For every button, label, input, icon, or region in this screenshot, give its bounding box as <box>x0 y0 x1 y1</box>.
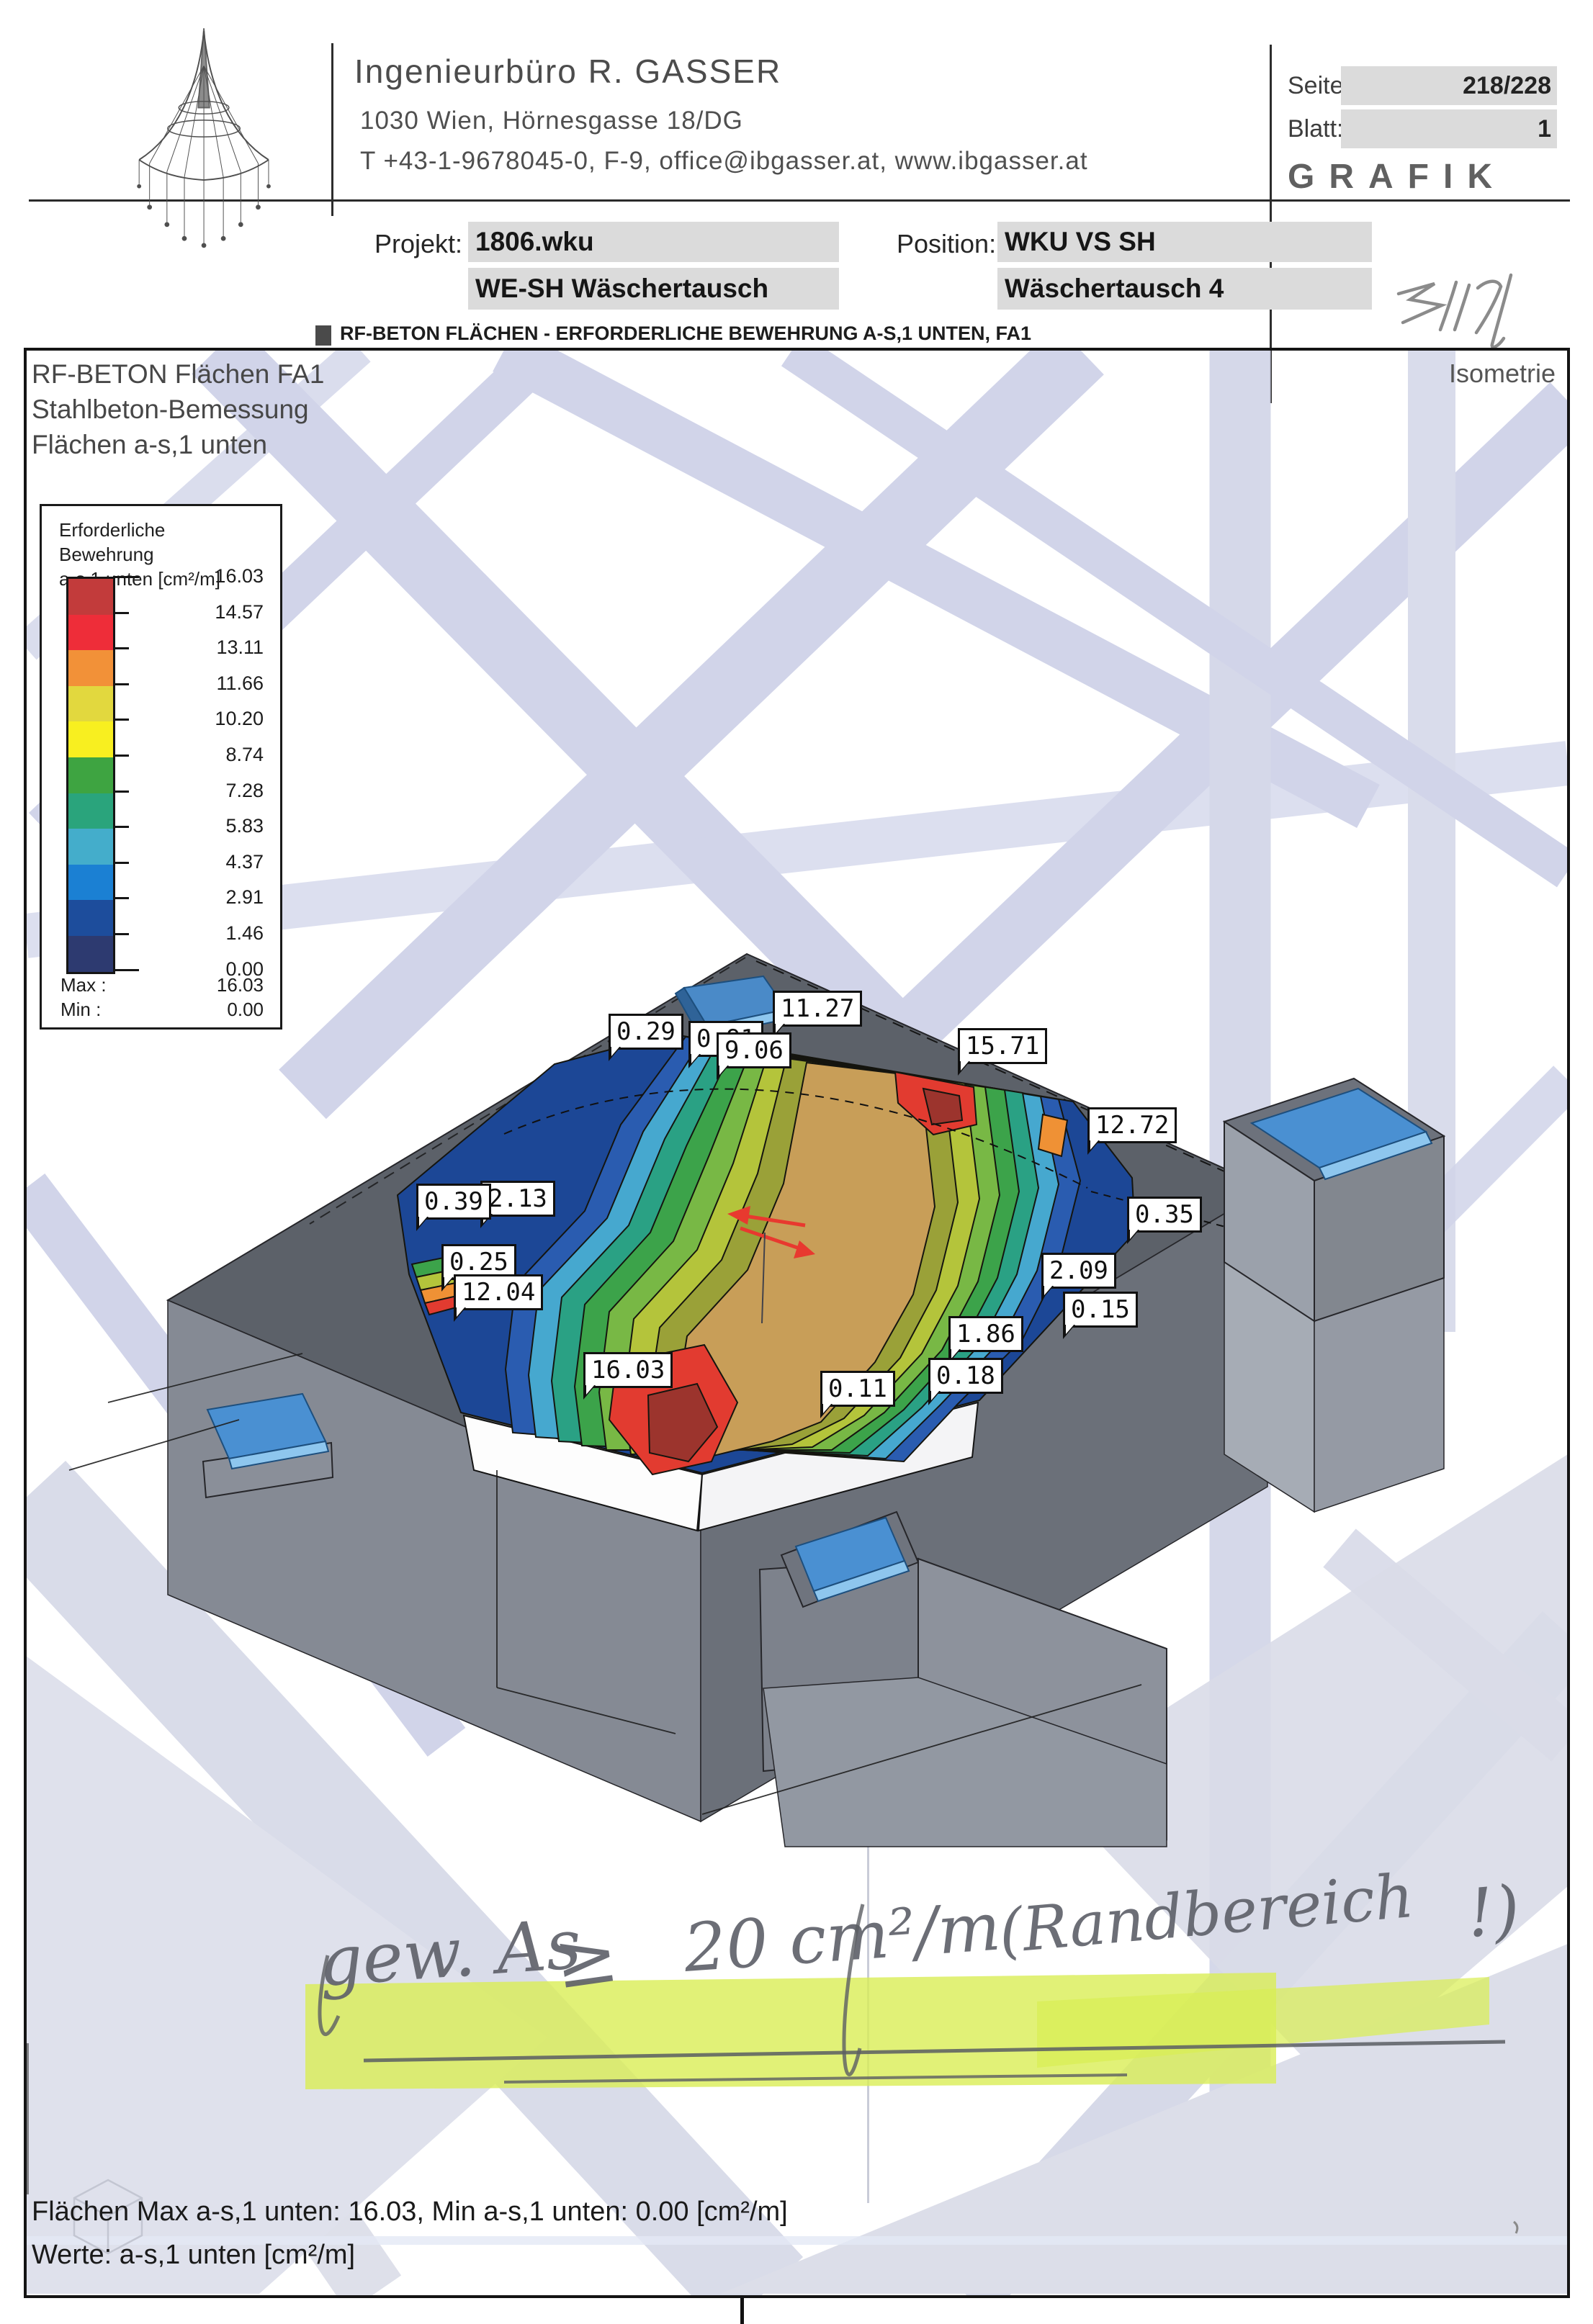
legend-segment <box>68 936 113 972</box>
value-label: 16.03 <box>583 1352 673 1388</box>
bottom-tick-mark <box>740 2298 744 2324</box>
legend-tick-mark <box>113 647 129 649</box>
legend-tick-value: 14.57 <box>150 601 264 623</box>
legend-segment <box>68 579 113 615</box>
view-label: Isometrie <box>1449 359 1556 389</box>
company-logo-icon <box>101 20 310 258</box>
legend-min-label: Min : <box>60 999 101 1021</box>
legend-tick-mark <box>113 969 139 971</box>
legend-tick-value: 7.28 <box>150 780 264 802</box>
legend-tick-value: 16.03 <box>150 565 264 587</box>
legend-tick-mark <box>113 683 129 685</box>
scanned-report-page: { "header": { "company": { "name": "Inge… <box>0 0 1593 2324</box>
legend-tick-value: 2.91 <box>150 886 264 909</box>
figure-subtitle-line3: Flächen a-s,1 unten <box>32 427 324 462</box>
value-label: 12.72 <box>1087 1107 1177 1143</box>
legend-tick-value: 13.11 <box>150 636 264 659</box>
figure-subtitle: RF-BETON Flächen FA1 Stahlbeton-Bemessun… <box>32 356 324 462</box>
value-label: 0.35 <box>1127 1197 1202 1233</box>
legend-segment <box>68 721 113 757</box>
legend-tick-value: 10.20 <box>150 708 264 730</box>
value-label: 0.18 <box>928 1358 1003 1394</box>
legend-tick-mark <box>113 576 139 578</box>
value-label: 2.09 <box>1041 1253 1116 1289</box>
legend-tick-mark <box>113 933 129 935</box>
legend-segment <box>68 686 113 722</box>
value-label: 11.27 <box>773 991 862 1027</box>
value-label: 1.86 <box>948 1316 1023 1352</box>
legend-tick-mark <box>113 862 129 864</box>
legend-title-line1: Erforderliche <box>59 518 220 542</box>
value-label: 12.04 <box>454 1274 543 1310</box>
legend-tick-mark <box>113 755 129 757</box>
legend-tick-value: 4.37 <box>150 851 264 873</box>
handwritten-page-mark <box>1399 275 1511 347</box>
legend-segment <box>68 900 113 936</box>
value-label: 15.71 <box>958 1028 1047 1064</box>
legend-tick-mark <box>113 719 129 721</box>
value-label: 2.13 <box>480 1181 555 1217</box>
figure-footer-line2: Werte: a-s,1 unten [cm²/m] <box>32 2233 788 2276</box>
legend-segment <box>68 757 113 793</box>
figure-subtitle-line2: Stahlbeton-Bemessung <box>32 392 324 427</box>
legend-segment <box>68 615 113 651</box>
legend-tick-value: 11.66 <box>150 672 264 695</box>
legend-tick-mark <box>113 612 129 614</box>
legend-segment <box>68 829 113 865</box>
value-label: 0.39 <box>416 1184 491 1220</box>
legend-tick-value: 8.74 <box>150 744 264 766</box>
legend-min-value: 0.00 <box>150 999 264 1021</box>
legend-box: Erforderliche Bewehrung a-s,1 unten [cm²… <box>40 504 282 1030</box>
legend-max-value: 16.03 <box>150 974 264 996</box>
legend-title-line2: Bewehrung <box>59 542 220 567</box>
legend-max-label: Max : <box>60 974 107 996</box>
legend-segment <box>68 865 113 901</box>
value-label: 9.06 <box>717 1032 791 1068</box>
legend-tick-mark <box>113 826 129 828</box>
legend-tick-value: 1.46 <box>150 922 264 945</box>
value-label: 0.29 <box>609 1014 683 1050</box>
legend-tick-mark <box>113 791 129 793</box>
legend-segment <box>68 793 113 829</box>
figure-footer-line1: Flächen Max a-s,1 unten: 16.03, Min a-s,… <box>32 2190 788 2233</box>
legend-tick-mark <box>113 897 129 899</box>
value-label: 0.15 <box>1063 1292 1138 1328</box>
legend-tick-value: 5.83 <box>150 815 264 837</box>
legend-color-bar <box>66 577 115 974</box>
value-label: 0.11 <box>820 1371 895 1407</box>
figure-subtitle-line1: RF-BETON Flächen FA1 <box>32 356 324 392</box>
figure-footer: Flächen Max a-s,1 unten: 16.03, Min a-s,… <box>32 2190 788 2276</box>
legend-segment <box>68 650 113 686</box>
